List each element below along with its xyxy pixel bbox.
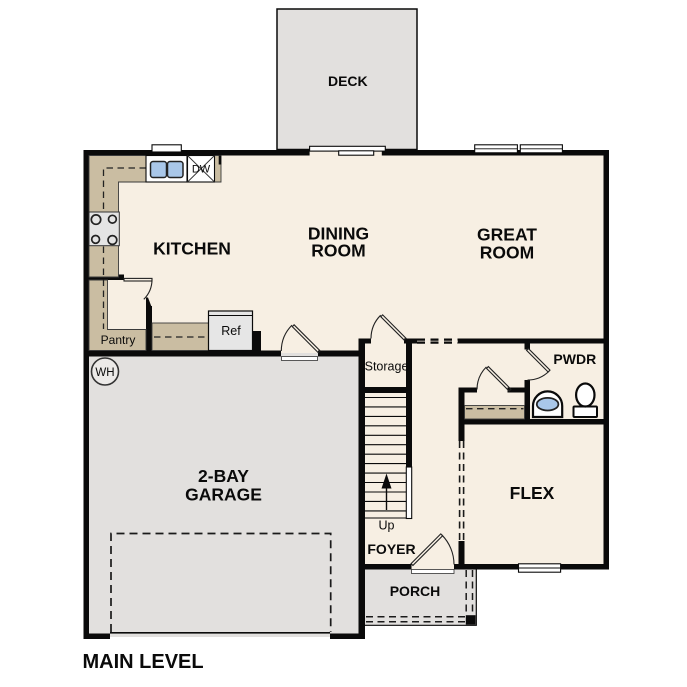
svg-text:Storage: Storage [365,360,409,374]
svg-text:GARAGE: GARAGE [185,485,262,505]
svg-text:MAIN LEVEL: MAIN LEVEL [83,651,204,673]
svg-text:2-BAY: 2-BAY [198,466,249,486]
svg-text:FLEX: FLEX [510,483,555,503]
svg-text:PORCH: PORCH [390,583,441,599]
svg-text:GREAT: GREAT [477,225,537,245]
svg-text:Up: Up [379,519,395,533]
svg-text:Pantry: Pantry [101,333,136,347]
svg-text:WH: WH [95,367,114,379]
svg-text:KITCHEN: KITCHEN [153,239,231,259]
svg-text:DECK: DECK [328,73,368,89]
svg-text:ROOM: ROOM [311,241,365,261]
svg-text:ROOM: ROOM [480,243,534,263]
svg-text:FOYER: FOYER [367,541,415,557]
svg-text:PWDR: PWDR [553,351,596,367]
svg-text:Ref: Ref [221,324,241,338]
svg-text:DW: DW [192,164,211,176]
